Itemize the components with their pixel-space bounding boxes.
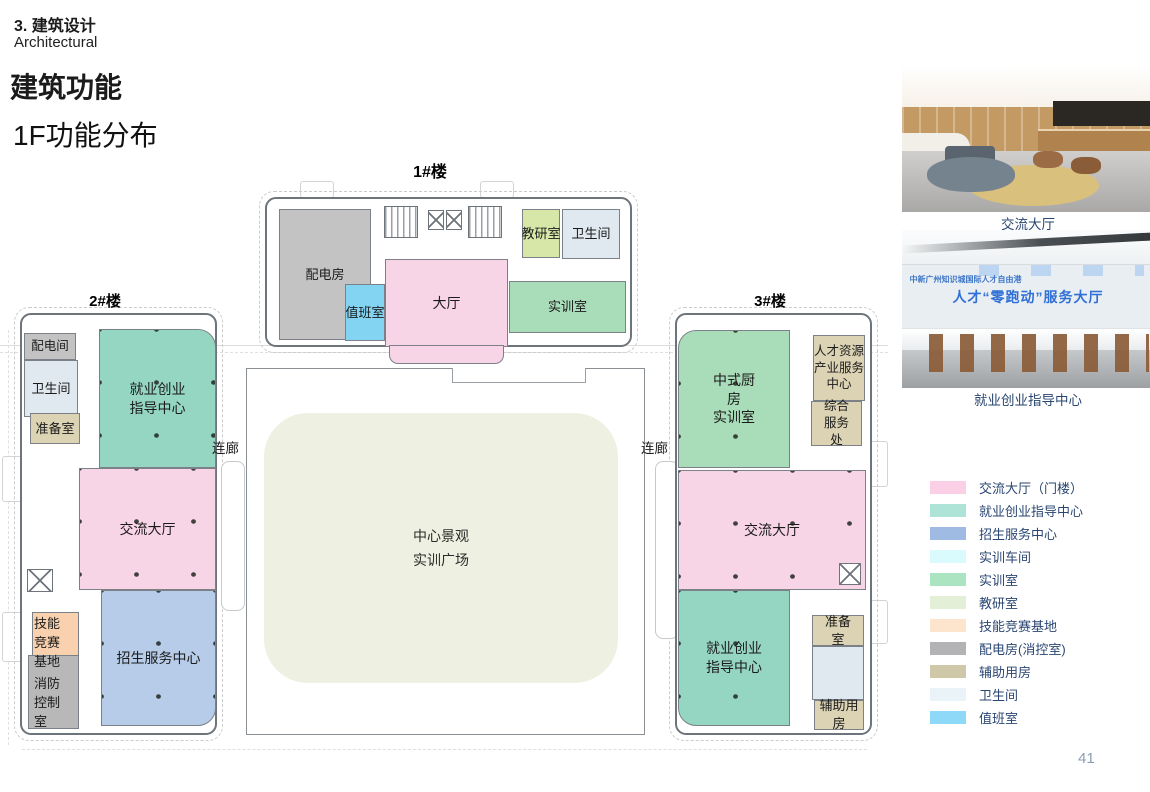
room-toilet-b3 xyxy=(812,646,864,700)
room-prep-room-b3: 准备 室 xyxy=(812,615,864,646)
legend-row: 交流大厅（门楼） xyxy=(930,481,1140,494)
room-employment-center-b3: 就业创业 指导中心 xyxy=(678,590,790,726)
building3-label: 3#楼 xyxy=(725,290,815,311)
legend-label: 配电房(消控室) xyxy=(979,639,1066,658)
legend-swatch xyxy=(930,711,966,724)
legend-row: 就业创业指导中心 xyxy=(930,504,1140,517)
courtyard-entry-notch xyxy=(452,368,586,383)
legend-label: 就业创业指导中心 xyxy=(979,501,1083,520)
legend-row: 配电房(消控室) xyxy=(930,642,1140,655)
legend-row: 辅助用房 xyxy=(930,665,1140,678)
stairwell xyxy=(468,206,502,238)
photo1-sofa xyxy=(927,157,1015,192)
legend-label: 实训室 xyxy=(979,570,1018,589)
room-power-room-b2: 配电间 xyxy=(24,333,76,360)
building2-label: 2#楼 xyxy=(60,290,150,311)
gate-porch-b1 xyxy=(389,345,504,364)
room-admissions-center-b2: 招生服务中心 xyxy=(101,590,216,726)
legend-swatch xyxy=(930,688,966,701)
photo-employment-center: 中新广州知识城国际人才自由港 人才“零跑动”服务大厅 xyxy=(902,230,1150,388)
room-toilet-b1: 卫生间 xyxy=(562,209,620,259)
legend-swatch xyxy=(930,642,966,655)
corridor-right-label: 连廊 xyxy=(641,437,668,457)
legend-row: 实训室 xyxy=(930,573,1140,586)
legend-swatch xyxy=(930,550,966,563)
legend-row: 技能竞赛基地 xyxy=(930,619,1140,632)
elevator-shaft xyxy=(839,563,861,585)
building1-label: 1#楼 xyxy=(380,158,480,182)
legend-label: 招生服务中心 xyxy=(979,524,1057,543)
site-boundary-bottom xyxy=(22,749,867,750)
corridor-left xyxy=(221,461,245,611)
room-talent-resource-center-b3: 人才资源 产业服务 中心 xyxy=(813,335,865,401)
page-number: 41 xyxy=(1078,750,1095,767)
room-main-hall-b1: 大厅 xyxy=(385,259,508,347)
legend-row: 值班室 xyxy=(930,711,1140,724)
elevator-shaft xyxy=(428,210,444,230)
legend-swatch xyxy=(930,596,966,609)
fire-control-room-label: 消防 控制 室 xyxy=(34,674,78,731)
legend-row: 教研室 xyxy=(930,596,1140,609)
photo2-wall-text-small: 中新广州知识城国际人才自由港 xyxy=(910,274,1022,285)
legend-label: 辅助用房 xyxy=(979,662,1031,681)
legend-swatch xyxy=(930,619,966,632)
photo1-chair xyxy=(1071,157,1101,175)
elevator-shaft xyxy=(27,569,53,592)
room-exchange-hall-b2: 交流大厅 xyxy=(79,468,216,590)
photo2-chairs xyxy=(912,334,1149,372)
legend-swatch xyxy=(930,665,966,678)
photo1-bar-counter xyxy=(1038,129,1150,151)
room-auxiliary-room-b3: 辅助用 房 xyxy=(814,700,864,730)
page-title: 建筑功能 xyxy=(10,66,122,106)
slide: 3. 建筑设计 Architectural 建筑功能 1F功能分布 1#楼 配电… xyxy=(0,0,1150,792)
room-employment-center-b2: 就业创业 指导中心 xyxy=(99,329,216,468)
room-prep-room-b2: 准备室 xyxy=(30,413,80,444)
legend-row: 卫生间 xyxy=(930,688,1140,701)
legend-swatch xyxy=(930,504,966,517)
skills-competition-base-label: 技能 竞赛 基地 xyxy=(34,614,78,671)
legend-label: 教研室 xyxy=(979,593,1018,612)
legend-swatch xyxy=(930,573,966,586)
legend-swatch xyxy=(930,481,966,494)
room-exchange-hall-b3: 交流大厅 xyxy=(678,470,866,590)
room-duty-room-b1: 值班室 xyxy=(345,284,385,341)
photo1-menu-board xyxy=(1053,101,1150,126)
room-training-room-b1: 实训室 xyxy=(509,281,626,333)
legend-row: 招生服务中心 xyxy=(930,527,1140,540)
photo-exchange-hall xyxy=(902,66,1150,212)
legend-label: 技能竞赛基地 xyxy=(979,616,1057,635)
page-subtitle: 1F功能分布 xyxy=(13,114,158,154)
legend-label: 实训车间 xyxy=(979,547,1031,566)
room-research-room-b1: 教研室 xyxy=(522,209,560,258)
room-toilet-b2: 卫生间 xyxy=(24,360,78,417)
section-heading: 3. 建筑设计 xyxy=(14,12,96,36)
section-heading-en: Architectural xyxy=(14,34,97,51)
legend-row: 实训车间 xyxy=(930,550,1140,563)
central-landscape-plaza: 中心景观 实训广场 xyxy=(264,413,618,683)
photo-caption-employment-center: 就业创业指导中心 xyxy=(902,389,1150,409)
corridor-left-label: 连廊 xyxy=(212,437,239,457)
legend-label: 交流大厅（门楼） xyxy=(979,478,1083,497)
stairwell xyxy=(384,206,418,238)
room-comprehensive-service-b3: 综合 服务 处 xyxy=(811,401,862,446)
legend-label: 值班室 xyxy=(979,708,1018,727)
photo1-chair xyxy=(1033,151,1063,169)
legend-label: 卫生间 xyxy=(979,685,1018,704)
legend-swatch xyxy=(930,527,966,540)
room-chinese-kitchen-training-b3: 中式厨 房 实训室 xyxy=(678,330,790,468)
site-boundary-left xyxy=(8,330,9,745)
legend: 交流大厅（门楼）就业创业指导中心招生服务中心实训车间实训室教研室技能竞赛基地配电… xyxy=(930,481,1140,734)
elevator-shaft xyxy=(446,210,462,230)
photo2-wall-text: 人才“零跑动”服务大厅 xyxy=(902,287,1150,307)
